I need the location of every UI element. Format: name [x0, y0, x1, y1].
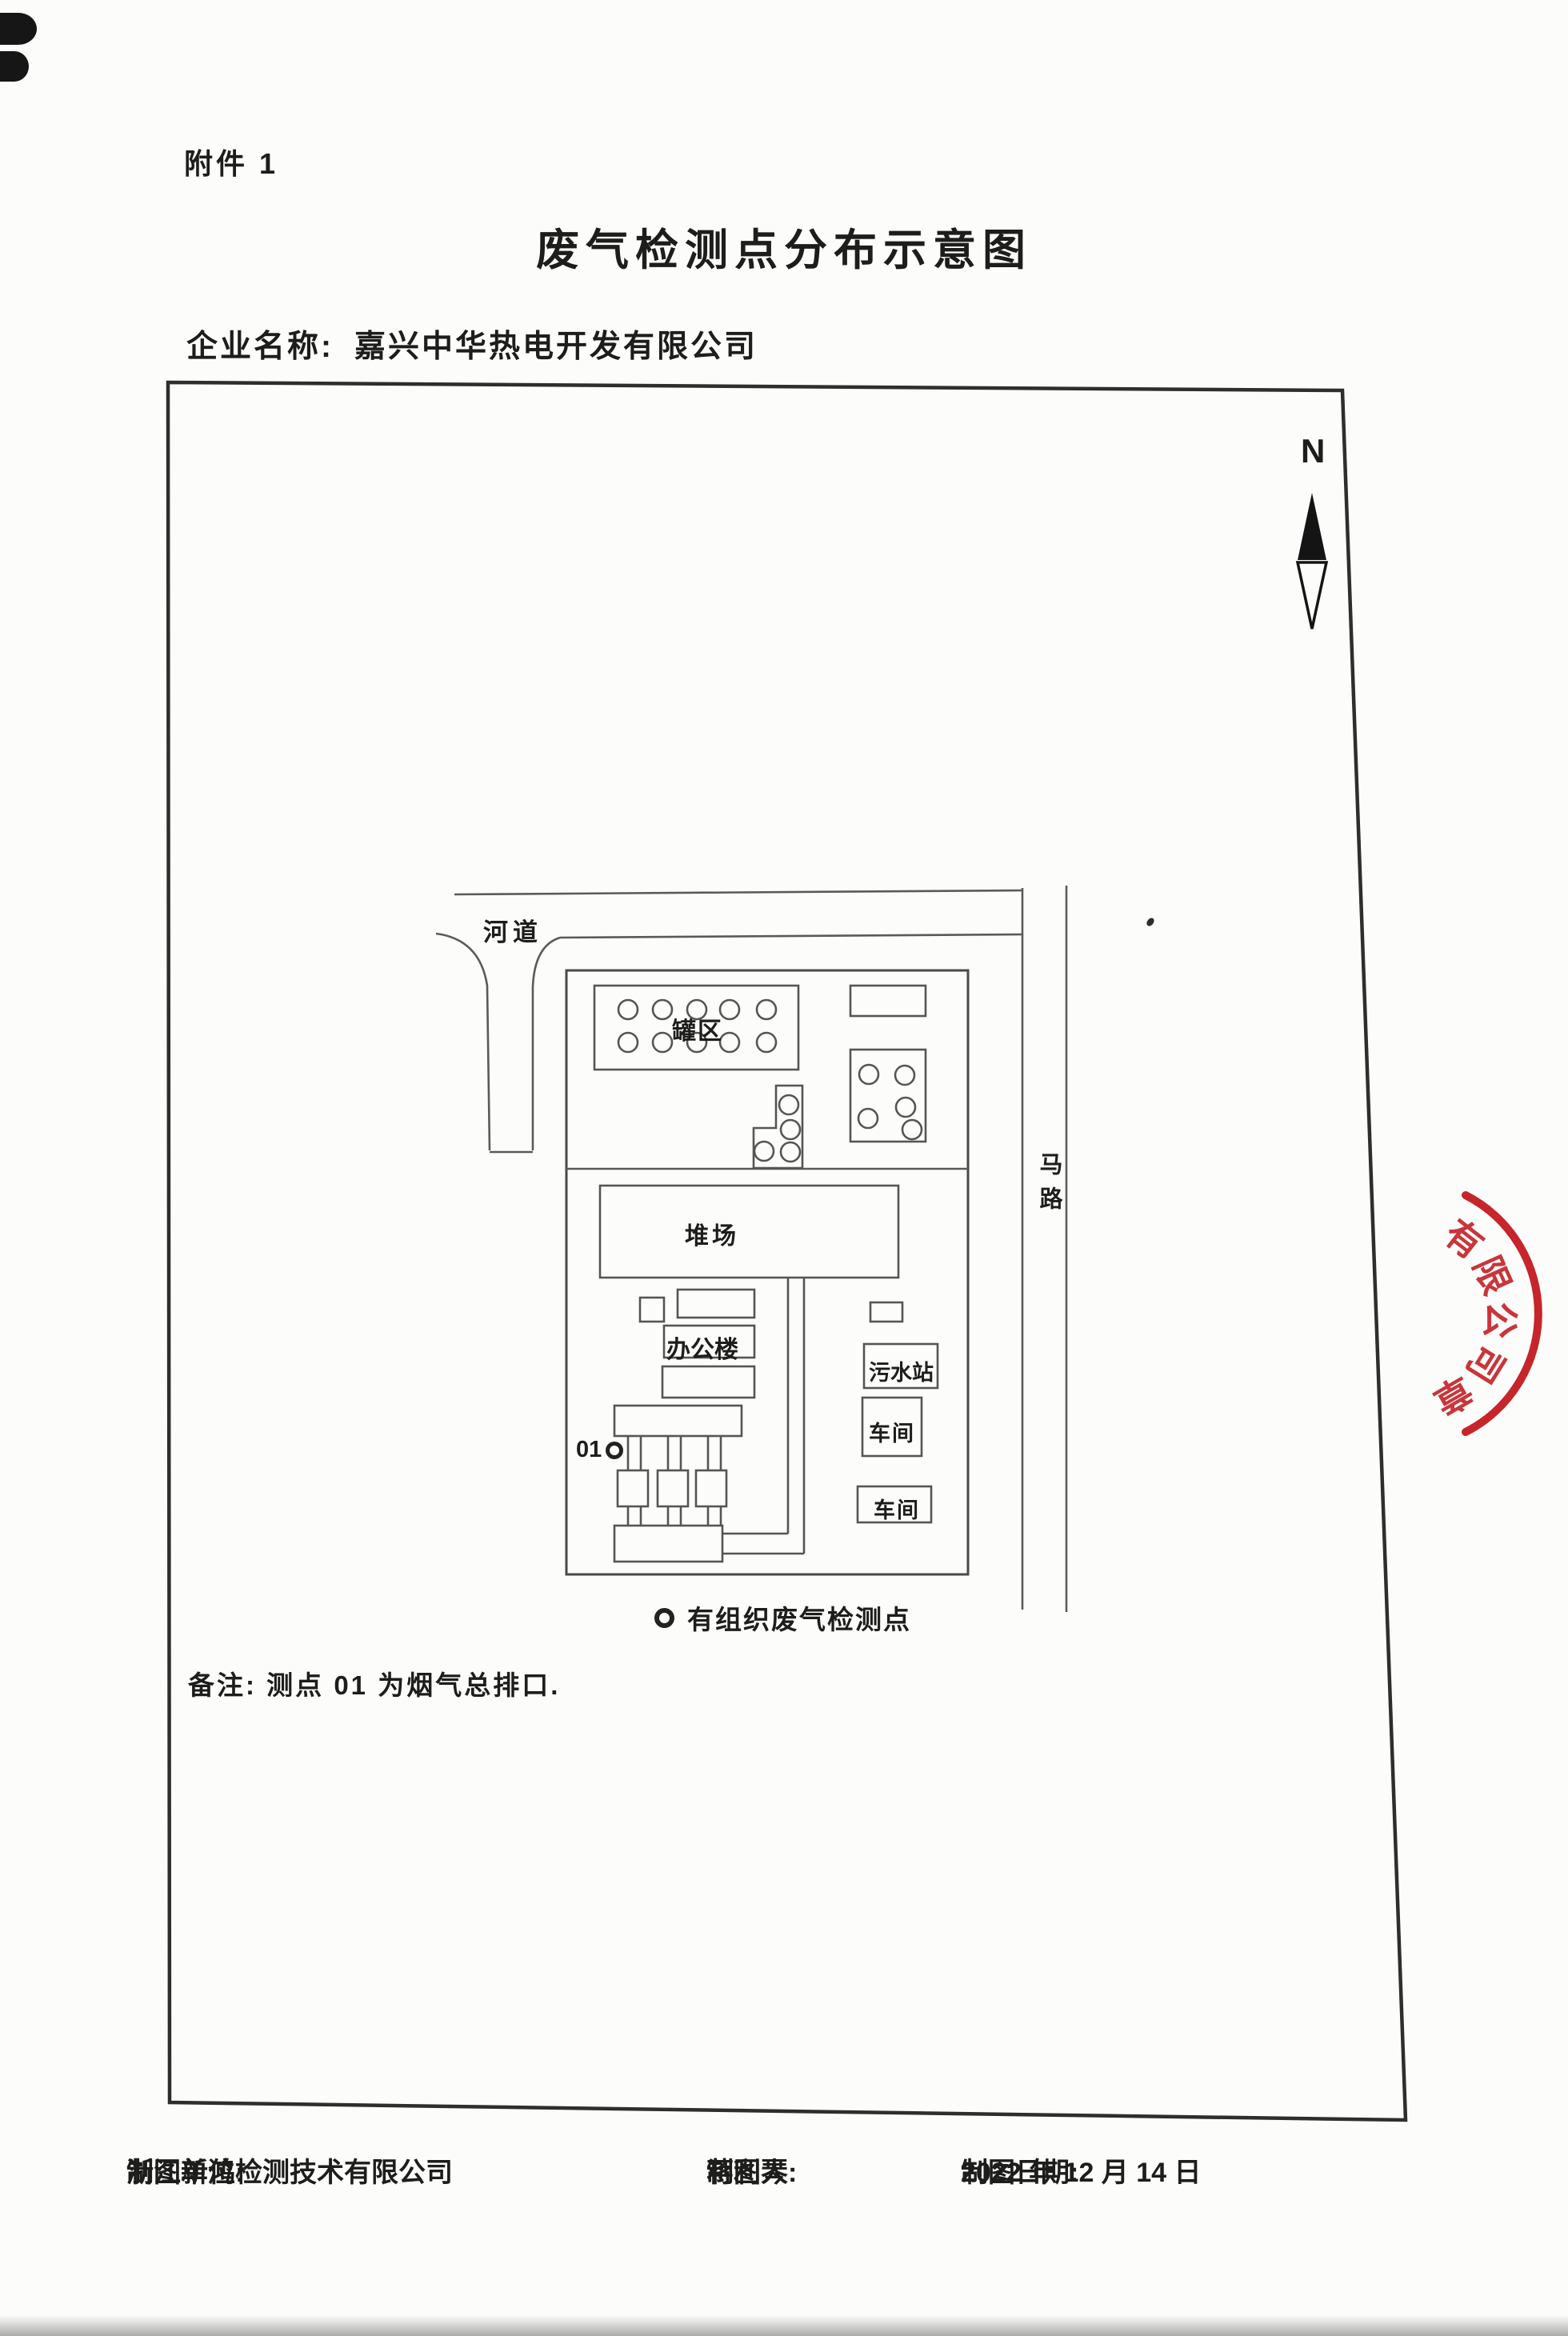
legend-text: 有组织废气检测点	[687, 1598, 911, 1637]
map-border	[168, 382, 1406, 2120]
office-label: 办公楼	[666, 1330, 738, 1365]
road-lines	[454, 886, 1066, 1612]
small-tank-circles	[858, 1065, 922, 1139]
legend: 有组织废气检测点	[654, 1598, 911, 1637]
monitoring-point-01: 01	[576, 1437, 623, 1463]
factory-boundary	[566, 970, 968, 1574]
building-outline	[678, 1290, 754, 1318]
site-map-drawing	[0, 0, 1568, 2336]
seal-char: 公	[1480, 1300, 1519, 1339]
boiler-unit-outline	[618, 1470, 648, 1506]
monitoring-point-icon	[606, 1442, 623, 1459]
building-outline	[662, 1366, 754, 1398]
scanned-document-page: 附件 1 废气检测点分布示意图 企业名称:嘉兴中华热电开发有限公司	[0, 0, 1568, 2336]
north-arrow-icon	[1298, 562, 1326, 629]
legend-monitoring-point-icon	[654, 1608, 674, 1628]
point-01-id: 01	[576, 1437, 602, 1463]
boiler-unit-outline	[658, 1470, 688, 1506]
boiler-base-outline	[614, 1526, 722, 1562]
stockyard-outline	[600, 1186, 898, 1278]
small-building-outline	[640, 1298, 664, 1322]
note-line: 备注: 测点 01 为烟气总排口.	[188, 1664, 560, 1702]
north-label: N	[1301, 432, 1325, 470]
footer-credits: 制图单位: 浙江新鸿检测技术有限公司 制图人: 蒋利琴 制图日期: 2022 年…	[0, 2150, 1568, 2186]
workshop1-label: 车间	[869, 1416, 915, 1447]
boiler-pipes	[628, 1436, 721, 1526]
building-outline	[850, 986, 926, 1016]
river-label: 河道	[483, 912, 542, 948]
sewage-station-label: 污水站	[869, 1355, 934, 1386]
workshop2-label: 车间	[874, 1493, 920, 1524]
north-arrow-icon	[1298, 493, 1326, 560]
river-channel	[436, 934, 560, 1152]
building-with-tanks-outline	[850, 1050, 926, 1142]
boiler-header-outline	[614, 1406, 742, 1436]
road-label: 马路	[1032, 1152, 1066, 1221]
boiler-unit-outline	[696, 1470, 726, 1506]
small-building-outline	[870, 1302, 902, 1322]
tank-area-label: 罐区	[672, 1011, 723, 1046]
stockyard-label: 堆场	[685, 1216, 739, 1251]
